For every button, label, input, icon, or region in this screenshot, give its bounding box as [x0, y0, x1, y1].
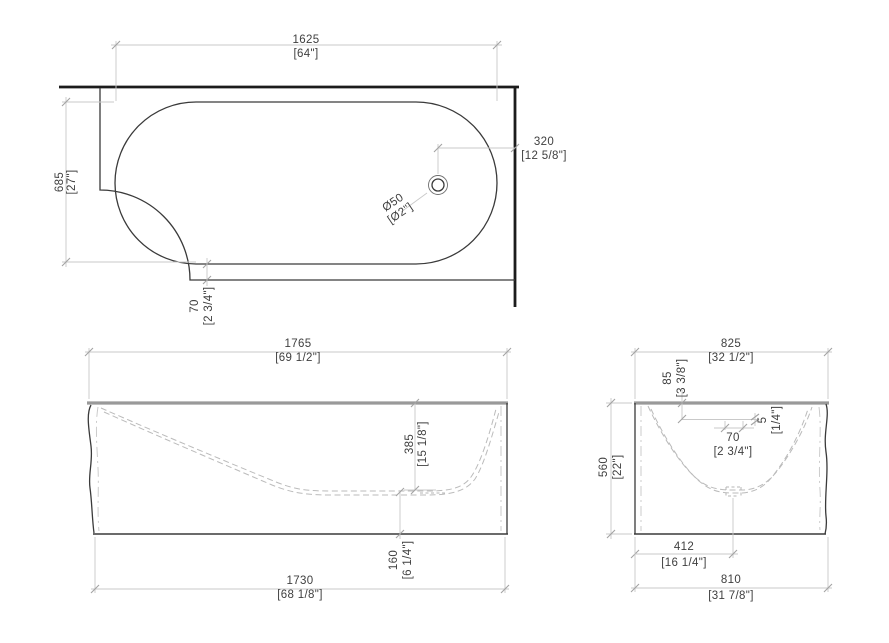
dim-base-length-mm: 1730: [287, 575, 314, 587]
drain-inner-circle: [432, 179, 444, 191]
dim-overflow-slot-width-in: [2 3/4"]: [714, 446, 753, 458]
dim-inner-depth-mm: 385: [404, 434, 416, 454]
dim-overflow-drop-mm: 85: [662, 371, 674, 385]
front-view-basin-hidden-profile-outer: [101, 408, 496, 491]
dim-lines-basin-width: [62, 97, 196, 267]
dim-lines-overflow-slot-width: [714, 421, 754, 430]
dim-drain-center-offset-in: [16 1/4"]: [661, 557, 707, 569]
dim-overflow-slot-width-mm: 70: [726, 432, 740, 444]
front-view-basin-hidden-profile-inner: [104, 412, 499, 495]
dim-drain-center-offset-mm: 412: [674, 541, 694, 553]
front-view-left-edge: [88, 405, 94, 533]
dim-basin-length-mm: 1625: [293, 34, 320, 46]
side-view: 825 [32 1/2"] 85 [3 3/8"] 5 [1/4"] 70 [2…: [598, 338, 832, 602]
drain-diameter-label: Ø50 [Ø2"]: [378, 190, 415, 226]
dim-drain-to-wall-in: [12 5/8"]: [521, 150, 567, 162]
dim-overall-length-mm: 1765: [285, 338, 312, 350]
dim-drain-to-wall-mm: 320: [534, 136, 554, 148]
top-view-tub-outline: [100, 88, 515, 280]
dim-lines-drain-to-wall: [438, 144, 515, 174]
front-view: 1765 [69 1/2"] 385 [15 1/8"] 160 [6 1/4"…: [85, 338, 511, 601]
dim-rim-offset-in: [2 3/4"]: [203, 287, 215, 326]
dim-overall-length-in: [69 1/2"]: [275, 352, 321, 364]
dim-lines-overflow-drop: [682, 390, 757, 420]
dim-basin-length-in: [64"]: [293, 48, 318, 60]
dim-overall-height-mm: 560: [598, 457, 610, 477]
dim-overflow-slot-height-in: [1/4"]: [771, 406, 783, 435]
dim-overall-width-in: [32 1/2"]: [708, 352, 754, 364]
dim-overall-height-in: [22"]: [612, 454, 624, 479]
dim-base-width-mm: 810: [721, 574, 741, 586]
dim-rim-offset-mm: 70: [189, 299, 201, 313]
side-view-drain-hidden-outline: [726, 487, 741, 496]
top-view-basin-outline: [115, 102, 497, 264]
dim-overflow-slot-height-mm: 5: [757, 417, 769, 424]
side-view-right-hidden-line: [819, 407, 820, 530]
dim-overflow-drop-in: [3 3/8"]: [676, 359, 688, 398]
dim-overall-width-mm: 825: [721, 338, 741, 350]
drawing-sheet: 1625 [64"] 685 [27"] 320 [12 5/8"] 70 [2…: [0, 0, 889, 643]
front-view-left-hidden-line: [96, 407, 99, 531]
dim-basin-width-mm: 685: [54, 172, 66, 192]
dim-bottom-height-mm: 160: [388, 550, 400, 570]
side-view-right-edge: [825, 404, 827, 534]
dim-inner-depth-in: [15 1/8"]: [417, 421, 429, 467]
dim-bottom-height-in: [6 1/4"]: [402, 541, 414, 580]
dim-basin-width-in: [27"]: [66, 169, 78, 194]
top-view: 1625 [64"] 685 [27"] 320 [12 5/8"] 70 [2…: [54, 34, 567, 325]
dim-base-length-in: [68 1/8"]: [277, 589, 323, 601]
technical-drawing-svg: 1625 [64"] 685 [27"] 320 [12 5/8"] 70 [2…: [0, 0, 889, 643]
dim-base-width-in: [31 7/8"]: [708, 590, 754, 602]
